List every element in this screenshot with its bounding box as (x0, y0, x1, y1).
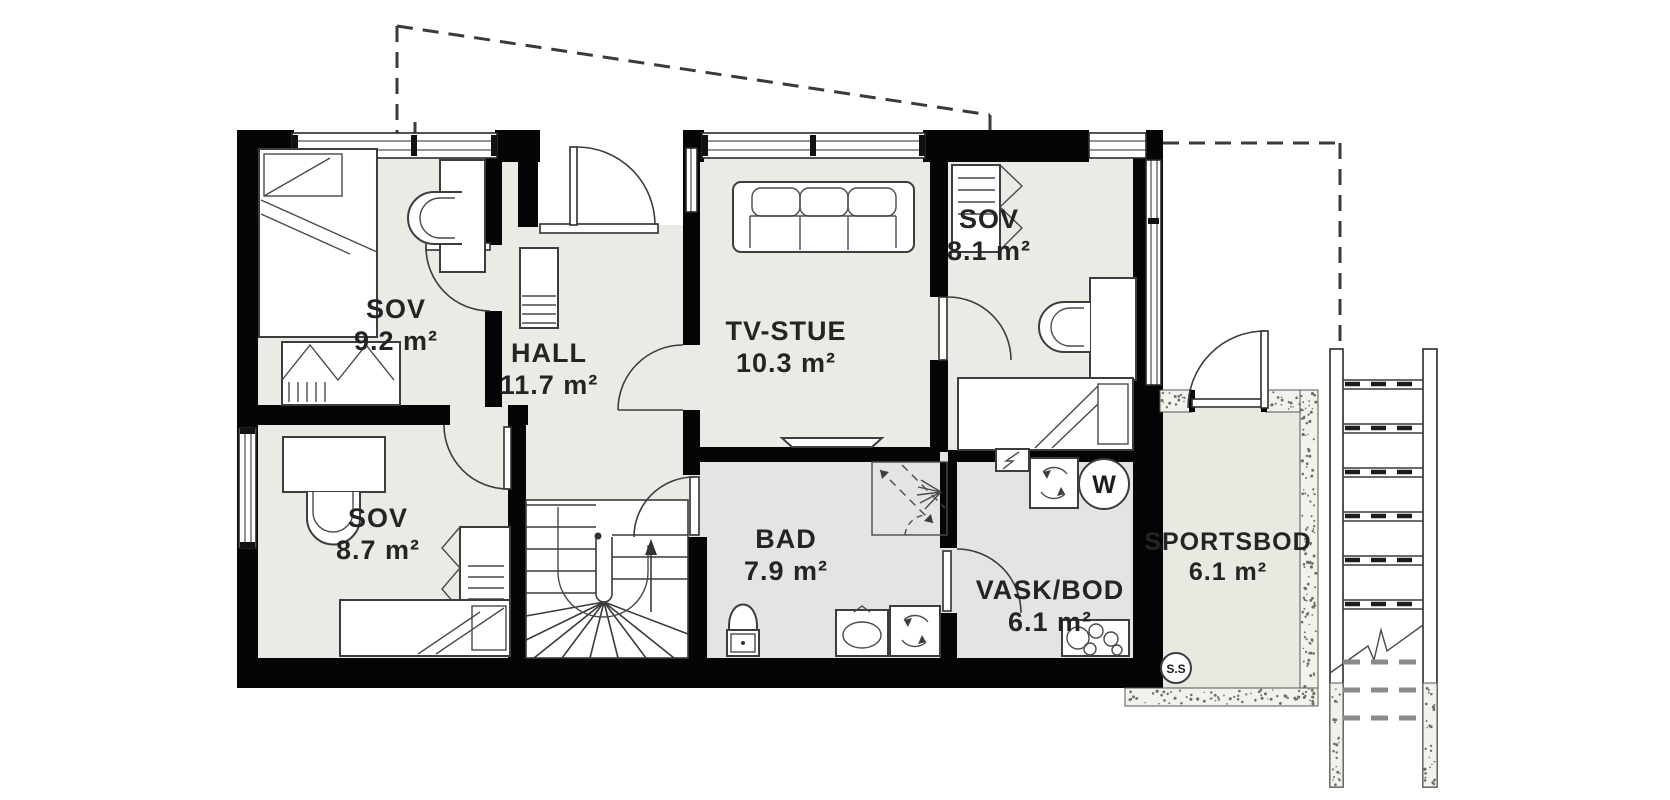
outdoor-stair-treads (1343, 380, 1423, 609)
speckle-dot (1204, 692, 1205, 693)
speckle-dot (1298, 403, 1301, 406)
speckle-dot (1313, 555, 1316, 558)
speckle-dot (1290, 406, 1292, 408)
speckle-dot (1314, 572, 1316, 574)
speckle-dot (1156, 690, 1159, 693)
speckle-dot (1303, 648, 1305, 650)
speckle-dot (1177, 399, 1180, 402)
speckle-dot (1169, 392, 1171, 394)
speckle-dot (1279, 702, 1282, 705)
speckle-dot (1309, 500, 1311, 502)
speckle-dot (1312, 692, 1315, 695)
speckle-dot (1180, 702, 1183, 705)
speckle-dot (1162, 691, 1165, 694)
speckle-dot (1276, 695, 1278, 697)
speckle-dot (1237, 698, 1240, 701)
speckle-dot (1272, 391, 1274, 393)
speckle-dot (1303, 597, 1305, 599)
window-tvstue-top (702, 133, 925, 158)
label-sportsbod-name: SPORTSBOD (1144, 528, 1311, 556)
speckle-dot (1309, 700, 1311, 702)
washing-machine-bad (890, 606, 940, 656)
speckle-dot (1311, 562, 1314, 565)
speckle-dot (1298, 690, 1300, 692)
speckle-dot (1241, 701, 1244, 704)
door-sportsbod (1188, 331, 1268, 408)
speckle-dot (1250, 693, 1252, 695)
speckle-dot (1144, 702, 1145, 703)
speckle-dot (1308, 405, 1310, 407)
speckle-dot (1333, 776, 1335, 778)
speckle-dot (1152, 692, 1155, 695)
speckle-dot (1312, 488, 1314, 490)
speckle-dot (1311, 689, 1314, 692)
speckle-dot (1312, 408, 1314, 410)
speckle-dot (1308, 652, 1311, 655)
speckle-dot (1174, 395, 1177, 398)
speckle-dot (1297, 696, 1300, 699)
speckle-dot (1308, 420, 1311, 423)
speckle-dot (1432, 706, 1434, 708)
speckle-dot (1302, 693, 1305, 696)
chair-sov92 (408, 192, 462, 244)
speckle-dot (1334, 721, 1336, 723)
speckle-dot (1433, 779, 1436, 782)
speckle-dot (1190, 694, 1193, 697)
speckle-dot (1306, 466, 1308, 468)
wall-sov87-stub (508, 405, 528, 425)
bed-sov87 (340, 600, 510, 656)
speckle-dot (1311, 605, 1314, 608)
speckle-dot (1338, 778, 1340, 780)
speckle-dot (1301, 395, 1303, 397)
speckle-dot (1302, 429, 1304, 431)
speckle-dot (1308, 576, 1310, 578)
speckle-dot (1306, 462, 1309, 465)
speckle-dot (1304, 695, 1306, 697)
speckle-dot (1301, 515, 1303, 517)
label-sov81-name: SOV (959, 204, 1019, 234)
speckle-dot (1245, 693, 1247, 695)
speckle-dot (1426, 687, 1429, 690)
speckle-dot (1314, 532, 1316, 534)
speckle-dot (1270, 698, 1273, 701)
speckle-dot (1339, 773, 1341, 775)
speckle-dot (1161, 399, 1164, 402)
speckle-dot (1307, 413, 1309, 415)
bathroom-sink (836, 606, 888, 656)
speckle-dot (1335, 743, 1338, 746)
speckle-dot (1335, 766, 1337, 768)
speckle-dot (1428, 724, 1430, 726)
speckle-dot (1302, 401, 1304, 403)
label-tvstue-name: TV-STUE (725, 316, 846, 346)
speckle-dot (1304, 587, 1307, 590)
floor-plan-canvas: W S.S SOV 9.2 m² HALL 11.7 m² TV-STUE 10… (0, 0, 1670, 800)
speckle-dot (1275, 403, 1277, 405)
speckle-dot (1313, 672, 1315, 674)
floor-plan-drawing: W S.S SOV 9.2 m² HALL 11.7 m² TV-STUE 10… (0, 0, 1670, 800)
speckle-dot (1424, 777, 1426, 779)
speckle-dot (1311, 696, 1314, 699)
speckle-dot (1277, 396, 1280, 399)
speckle-dot (1313, 602, 1315, 604)
speckle-dot (1430, 693, 1433, 696)
label-vask-name: VASK/BOD (976, 575, 1125, 605)
speckle-dot (1303, 608, 1305, 610)
speckle-dot (1238, 690, 1241, 693)
speckle-dot (1184, 397, 1186, 399)
speckle-dot (1288, 408, 1290, 410)
label-tvstue-area: 10.3 m² (736, 348, 836, 378)
speckle-dot (1305, 435, 1306, 436)
speckle-dot (1168, 702, 1170, 704)
wall-stair-bad (688, 537, 707, 658)
speckle-dot (1334, 783, 1337, 786)
speckle-dot (1162, 392, 1164, 394)
roof-dashed-sloped (397, 26, 990, 115)
speckle-dot (1305, 408, 1307, 410)
speckle-dot (1272, 404, 1274, 406)
speckle-dot (1287, 697, 1289, 699)
speckle-dot (1281, 404, 1283, 406)
speckle-dot (1163, 699, 1166, 702)
speckle-dot (1295, 396, 1298, 399)
speckle-dot (1313, 438, 1315, 440)
speckle-dot (1425, 748, 1427, 750)
speckle-dot (1434, 761, 1436, 763)
speckle-dot (1307, 495, 1309, 497)
speckle-dot (1293, 697, 1296, 700)
speckle-dot (1301, 459, 1304, 462)
speckle-dot (1336, 702, 1337, 703)
speckle-dot (1233, 696, 1235, 698)
speckle-dot (1430, 750, 1432, 752)
speckle-dot (1304, 631, 1306, 633)
speckle-dot (1311, 469, 1314, 472)
label-sov92-area: 9.2 m² (354, 326, 438, 356)
speckle-dot (1337, 772, 1339, 774)
speckle-dot (1174, 697, 1177, 700)
speckle-dot (1301, 621, 1304, 624)
wall-tvstue-sov81-upper (930, 158, 948, 297)
sportsbod-wall-top-left (1160, 390, 1192, 412)
speckle-dot (1223, 695, 1225, 697)
speckle-dot (1308, 455, 1311, 458)
speckle-dot (1311, 640, 1313, 642)
speckle-dot (1311, 702, 1314, 705)
speckle-dot (1304, 616, 1306, 618)
label-sov81-area: 8.1 m² (947, 236, 1031, 266)
speckle-dot (1307, 433, 1308, 434)
speckle-dot (1313, 493, 1315, 495)
speckle-dot (1133, 697, 1135, 699)
speckle-dot (1306, 455, 1308, 457)
wall-top-corner-right (1146, 130, 1163, 162)
speckle-dot (1264, 692, 1267, 695)
speckle-dot (1315, 630, 1317, 632)
speckle-dot (1180, 394, 1182, 396)
speckle-dot (1303, 685, 1306, 688)
window-sov87-left (239, 428, 256, 548)
speckle-dot (1261, 697, 1264, 700)
speckle-dot (1301, 492, 1304, 495)
washing-machine-vask (1030, 458, 1078, 508)
wall-bottom (237, 658, 1163, 688)
hall-rack (520, 248, 558, 328)
speckle-dot (1309, 624, 1310, 625)
speckle-dot (1218, 698, 1220, 700)
speckle-dot (1433, 704, 1435, 706)
speckle-dot (1314, 586, 1316, 588)
speckle-dot (1313, 520, 1315, 522)
speckle-dot (1334, 700, 1337, 703)
window-porch-side (686, 148, 697, 212)
label-bad-name: BAD (755, 524, 817, 554)
outdoor-stair-treads-below-break (1343, 662, 1423, 718)
speckle-dot (1338, 737, 1340, 739)
speckle-dot (1433, 783, 1435, 785)
sofa (733, 182, 914, 252)
speckle-dot (1158, 703, 1160, 705)
bed-sov92 (259, 149, 377, 337)
speckle-dot (1310, 475, 1313, 478)
speckle-dot (1290, 401, 1293, 404)
speckle-dot (1312, 530, 1314, 532)
speckle-dot (1308, 449, 1311, 452)
speckle-dot (1313, 525, 1315, 527)
speckle-dot (1302, 433, 1305, 436)
speckle-dot (1336, 751, 1338, 753)
speckle-dot (1426, 727, 1428, 729)
label-sov87-area: 8.7 m² (336, 535, 420, 565)
speckle-dot (1303, 660, 1305, 662)
label-sov87-name: SOV (348, 503, 408, 533)
speckle-dot (1203, 701, 1205, 703)
speckle-dot (1306, 422, 1309, 425)
entry-porch-floor (538, 130, 683, 225)
speckle-dot (1306, 594, 1307, 595)
speckle-dot (1163, 402, 1164, 403)
speckle-dot (1306, 665, 1308, 667)
wall-bad-vask-lower (940, 613, 957, 658)
speckle-dot (1217, 696, 1219, 698)
speckle-dot (1130, 698, 1132, 700)
speckle-dot (1308, 400, 1310, 402)
speckle-dot (1284, 694, 1286, 696)
speckle-dot (1332, 768, 1334, 770)
speckle-dot (1425, 703, 1428, 706)
speckle-dot (1335, 757, 1337, 759)
window-sov81-right (1146, 160, 1161, 385)
speckle-dot (1129, 691, 1132, 694)
speckle-dot (1301, 611, 1304, 614)
speckle-dot (1303, 489, 1304, 490)
speckle-dot (1135, 698, 1137, 700)
speckle-dot (1215, 700, 1217, 702)
speckle-dot (1307, 662, 1310, 665)
speckle-dot (1196, 697, 1199, 700)
speckle-dot (1428, 692, 1430, 694)
label-hall-name: HALL (511, 338, 587, 368)
speckle-dot (1304, 636, 1306, 638)
speckle-dot (1304, 493, 1306, 495)
speckle-dot (1338, 742, 1340, 744)
speckle-dot (1429, 757, 1431, 759)
sportsbod-wall-bottom (1125, 688, 1318, 706)
speckle-dot (1431, 764, 1432, 765)
speckle-dot (1309, 599, 1312, 602)
speckle-dot (1272, 689, 1274, 691)
speckle-dot (1426, 720, 1428, 722)
speckle-dot (1303, 410, 1304, 411)
speckle-dot (1166, 406, 1168, 408)
speckle-dot (1303, 566, 1305, 568)
speckle-dot (1305, 477, 1307, 479)
staircase-outdoor (1330, 349, 1437, 787)
speckle-dot (1311, 614, 1313, 616)
speckle-dot (1258, 691, 1261, 694)
speckle-dot (1305, 651, 1307, 653)
speckle-dot (1313, 528, 1315, 530)
speckle-dot (1310, 411, 1313, 414)
speckle-dot (1177, 395, 1180, 398)
speckle-dot (1229, 697, 1232, 700)
speckle-dot (1189, 698, 1192, 701)
stringer-right-footing (1423, 683, 1437, 787)
speckle-dot (1210, 691, 1212, 693)
speckle-dot (1254, 699, 1256, 701)
speckle-dot (1308, 688, 1310, 690)
bed-sov81 (958, 378, 1133, 450)
speckle-dot (1292, 406, 1294, 408)
speckle-dot (1428, 689, 1430, 691)
speckle-dot (1182, 397, 1184, 399)
speckle-dot (1331, 696, 1333, 698)
speckle-dot (1166, 693, 1169, 696)
speckle-dot (1179, 689, 1181, 691)
wall-top-c (923, 130, 1089, 162)
speckle-dot (1302, 473, 1305, 476)
wall-tvstue-bad (683, 447, 940, 462)
speckle-dot (1313, 394, 1316, 397)
speckle-dot (1160, 694, 1163, 697)
speckle-dot (1237, 695, 1239, 697)
speckle-dot (1313, 504, 1315, 506)
speckle-dot (1332, 750, 1335, 753)
speckle-dot (1308, 561, 1311, 564)
speckle-dot (1175, 403, 1178, 406)
speckle-dot (1424, 779, 1427, 782)
speckle-dot (1306, 600, 1308, 602)
speckle-dot (1168, 402, 1171, 405)
speckle-dot (1429, 766, 1431, 768)
speckle-dot (1306, 638, 1308, 640)
speckle-dot (1311, 515, 1313, 517)
label-vask-area: 6.1 m² (1008, 607, 1092, 637)
speckle-dot (1430, 745, 1432, 747)
electrical-panel (996, 449, 1029, 471)
speckle-dot (1309, 642, 1311, 644)
speckle-dot (1281, 397, 1283, 399)
speckle-dot (1307, 583, 1310, 586)
speckle-dot (1303, 416, 1306, 419)
speckle-dot (1260, 694, 1262, 696)
label-bad-area: 7.9 m² (744, 556, 828, 586)
label-sov92-name: SOV (366, 294, 426, 324)
wall-porch-west (518, 130, 538, 227)
speckle-dot (1170, 691, 1172, 693)
speckle-dot (1214, 694, 1217, 697)
cold-storage-label: S.S (1166, 662, 1185, 676)
speckle-dot (1423, 768, 1426, 771)
wall-sov92-sov87 (237, 405, 450, 425)
speckle-dot (1310, 565, 1313, 568)
speckle-dot (1314, 401, 1317, 404)
wall-tvstue-sov81-lower (930, 360, 948, 452)
chair-sov81 (1039, 302, 1090, 352)
speckle-dot (1226, 703, 1228, 705)
speckle-dot (1281, 399, 1284, 402)
speckle-dot (1335, 719, 1338, 722)
speckle-dot (1303, 563, 1306, 566)
speckle-dot (1288, 401, 1290, 403)
toilet (727, 605, 759, 657)
speckle-dot (1210, 698, 1212, 700)
speckle-dot (1424, 772, 1427, 775)
window-sov81-top (1089, 133, 1146, 158)
speckle-dot (1307, 659, 1310, 662)
speckle-dot (1305, 691, 1307, 693)
speckle-dot (1312, 652, 1315, 655)
speckle-dot (1335, 688, 1337, 690)
speckle-dot (1267, 698, 1268, 699)
label-hall-area: 11.7 m² (500, 370, 599, 400)
speckle-dot (1183, 401, 1184, 402)
label-sportsbod-area: 6.1 m² (1189, 558, 1267, 586)
wall-hall-tvstue-lower (683, 410, 700, 475)
speckle-dot (1339, 693, 1341, 695)
water-heater-label: W (1092, 471, 1116, 499)
speckle-dot (1186, 696, 1188, 698)
outdoor-stair-break-line (1330, 625, 1423, 673)
stringer-left-footing (1330, 683, 1343, 787)
speckle-dot (1309, 674, 1312, 677)
water-heater: W (1079, 459, 1129, 509)
tv (782, 438, 882, 447)
speckle-dot (1332, 779, 1333, 780)
speckle-dot (1300, 408, 1303, 411)
speckle-dot (1334, 742, 1336, 744)
sportsbod-marker: S.S (1161, 653, 1191, 683)
speckle-dot (1308, 612, 1310, 614)
